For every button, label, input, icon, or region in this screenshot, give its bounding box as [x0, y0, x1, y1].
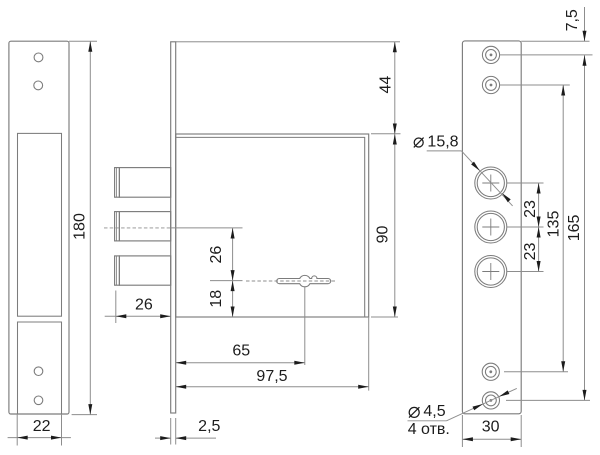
svg-text:2,5: 2,5: [198, 418, 220, 435]
svg-text:23: 23: [522, 243, 539, 261]
svg-text:23: 23: [522, 200, 539, 218]
svg-text:22: 22: [33, 418, 51, 435]
svg-text:4,5: 4,5: [423, 403, 445, 420]
svg-text:44: 44: [378, 76, 395, 94]
svg-text:26: 26: [208, 246, 225, 264]
svg-text:18: 18: [208, 290, 225, 308]
svg-text:30: 30: [482, 419, 500, 436]
svg-text:180: 180: [71, 213, 88, 240]
svg-text:90: 90: [374, 226, 391, 244]
svg-text:97,5: 97,5: [256, 368, 287, 385]
svg-text:15,8: 15,8: [427, 134, 458, 151]
svg-text:165: 165: [566, 214, 583, 241]
svg-text:65: 65: [232, 343, 250, 360]
svg-text:135: 135: [545, 211, 562, 238]
svg-text:4 отв.: 4 отв.: [408, 421, 450, 438]
svg-text:7,5: 7,5: [564, 9, 581, 31]
svg-text:26: 26: [135, 297, 153, 314]
